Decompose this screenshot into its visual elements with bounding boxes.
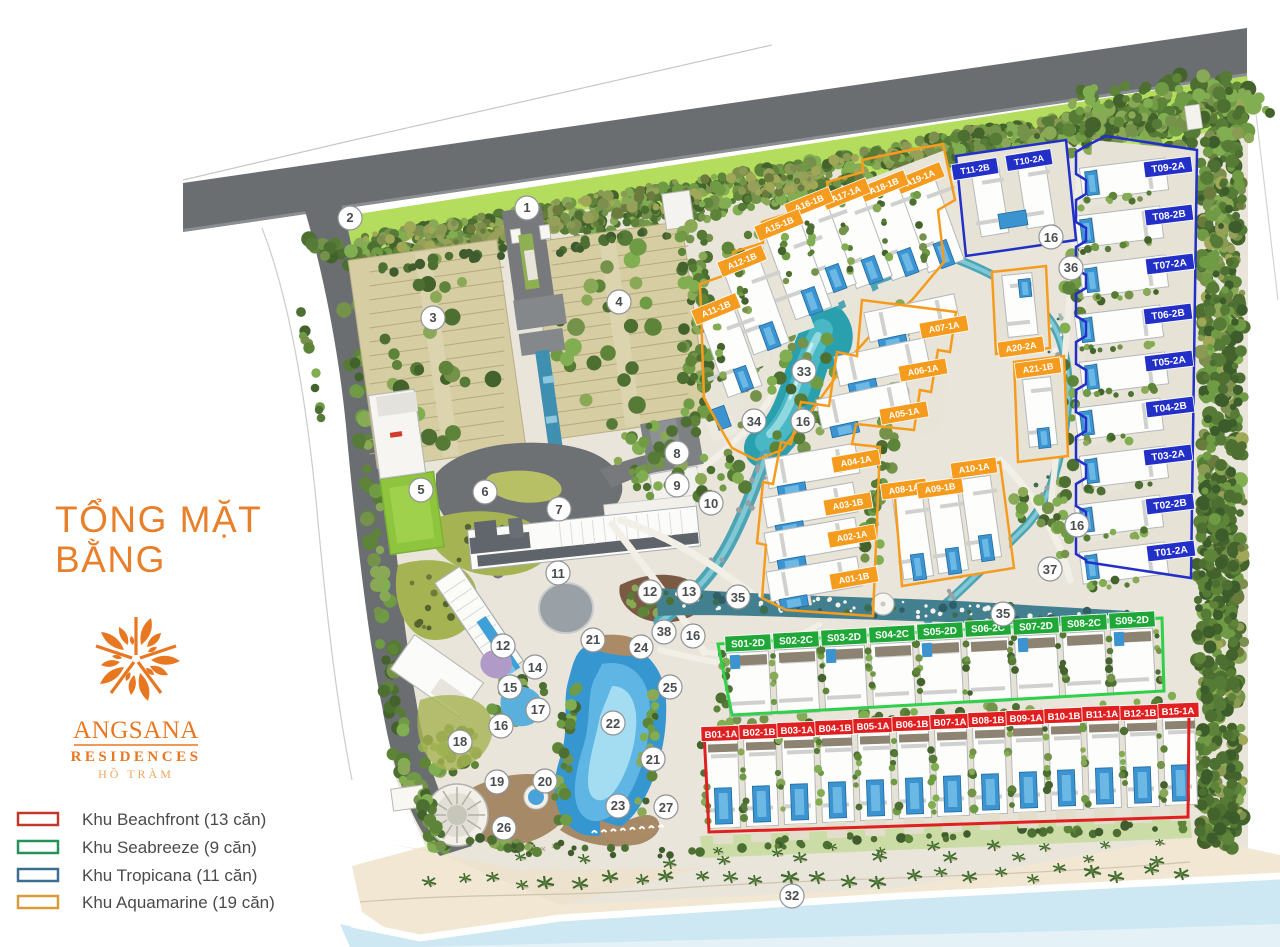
svg-text:B01-1A: B01-1A <box>704 729 737 741</box>
svg-text:12: 12 <box>643 584 657 599</box>
svg-text:B04-1B: B04-1B <box>818 723 851 735</box>
svg-text:37: 37 <box>1043 562 1057 577</box>
svg-text:11: 11 <box>551 566 565 581</box>
svg-text:10: 10 <box>704 496 718 511</box>
svg-text:HỒ TRÀM: HỒ TRÀM <box>98 766 174 781</box>
svg-text:15: 15 <box>503 680 517 695</box>
svg-text:B09-1A: B09-1A <box>1009 713 1042 725</box>
svg-text:ANGSANA: ANGSANA <box>73 717 199 744</box>
svg-text:B12-1B: B12-1B <box>1123 708 1156 720</box>
svg-text:21: 21 <box>586 632 600 647</box>
svg-text:B11-1A: B11-1A <box>1086 709 1119 721</box>
svg-text:B06-1B: B06-1B <box>895 719 928 731</box>
svg-text:35: 35 <box>731 590 745 605</box>
svg-text:32: 32 <box>785 888 799 903</box>
svg-text:22: 22 <box>606 716 620 731</box>
svg-text:4: 4 <box>615 294 623 309</box>
svg-text:19: 19 <box>490 774 504 789</box>
svg-text:16: 16 <box>1070 518 1084 533</box>
svg-text:BẰNG: BẰNG <box>55 539 166 580</box>
svg-text:20: 20 <box>538 774 552 789</box>
svg-text:5: 5 <box>417 482 424 497</box>
svg-text:S01-2D: S01-2D <box>731 638 765 651</box>
svg-text:Khu Aquamarine (19 căn): Khu Aquamarine (19 căn) <box>82 893 275 912</box>
svg-text:16: 16 <box>494 718 508 733</box>
svg-text:S07-2D: S07-2D <box>1019 621 1053 634</box>
svg-text:16: 16 <box>1044 230 1058 245</box>
svg-text:24: 24 <box>634 640 649 655</box>
svg-text:13: 13 <box>682 584 696 599</box>
svg-text:Khu Tropicana (11 căn): Khu Tropicana (11 căn) <box>82 866 257 885</box>
svg-text:33: 33 <box>797 364 811 379</box>
svg-text:14: 14 <box>528 660 543 675</box>
svg-text:B03-1A: B03-1A <box>780 725 813 737</box>
svg-text:6: 6 <box>481 484 488 499</box>
svg-text:1: 1 <box>523 200 530 215</box>
svg-text:17: 17 <box>531 702 545 717</box>
svg-text:B05-1A: B05-1A <box>856 721 889 733</box>
svg-text:7: 7 <box>555 502 562 517</box>
svg-text:34: 34 <box>747 414 762 429</box>
svg-text:2: 2 <box>346 210 353 225</box>
svg-text:16: 16 <box>796 414 810 429</box>
svg-text:S08-2C: S08-2C <box>1067 618 1101 631</box>
svg-text:16: 16 <box>686 628 700 643</box>
svg-text:27: 27 <box>659 800 673 815</box>
svg-text:12: 12 <box>496 638 510 653</box>
svg-text:B15-1A: B15-1A <box>1161 706 1194 718</box>
svg-text:S09-2D: S09-2D <box>1115 615 1149 628</box>
svg-text:TỔNG MẶT: TỔNG MẶT <box>55 497 262 540</box>
svg-text:S04-2C: S04-2C <box>875 629 909 642</box>
svg-text:Khu Beachfront (13 căn): Khu Beachfront (13 căn) <box>82 810 266 829</box>
svg-text:RESIDENCES: RESIDENCES <box>71 749 202 765</box>
svg-text:B07-1A: B07-1A <box>933 717 966 729</box>
svg-text:26: 26 <box>497 820 511 835</box>
svg-text:18: 18 <box>453 734 467 749</box>
svg-text:Khu Seabreeze (9 căn): Khu Seabreeze (9 căn) <box>82 838 257 857</box>
svg-text:S02-2C: S02-2C <box>779 635 813 648</box>
svg-text:B02-1B: B02-1B <box>742 727 775 739</box>
svg-text:35: 35 <box>996 606 1010 621</box>
svg-text:9: 9 <box>673 478 680 493</box>
svg-text:B08-1B: B08-1B <box>971 715 1004 727</box>
svg-text:36: 36 <box>1064 260 1078 275</box>
svg-text:21: 21 <box>646 752 660 767</box>
svg-text:3: 3 <box>429 310 436 325</box>
svg-text:25: 25 <box>663 680 677 695</box>
svg-text:S05-2D: S05-2D <box>923 626 957 639</box>
svg-text:23: 23 <box>611 798 625 813</box>
svg-text:B10-1B: B10-1B <box>1047 711 1080 723</box>
svg-text:38: 38 <box>657 624 671 639</box>
svg-text:S03-2D: S03-2D <box>827 632 861 645</box>
svg-text:8: 8 <box>673 446 680 461</box>
